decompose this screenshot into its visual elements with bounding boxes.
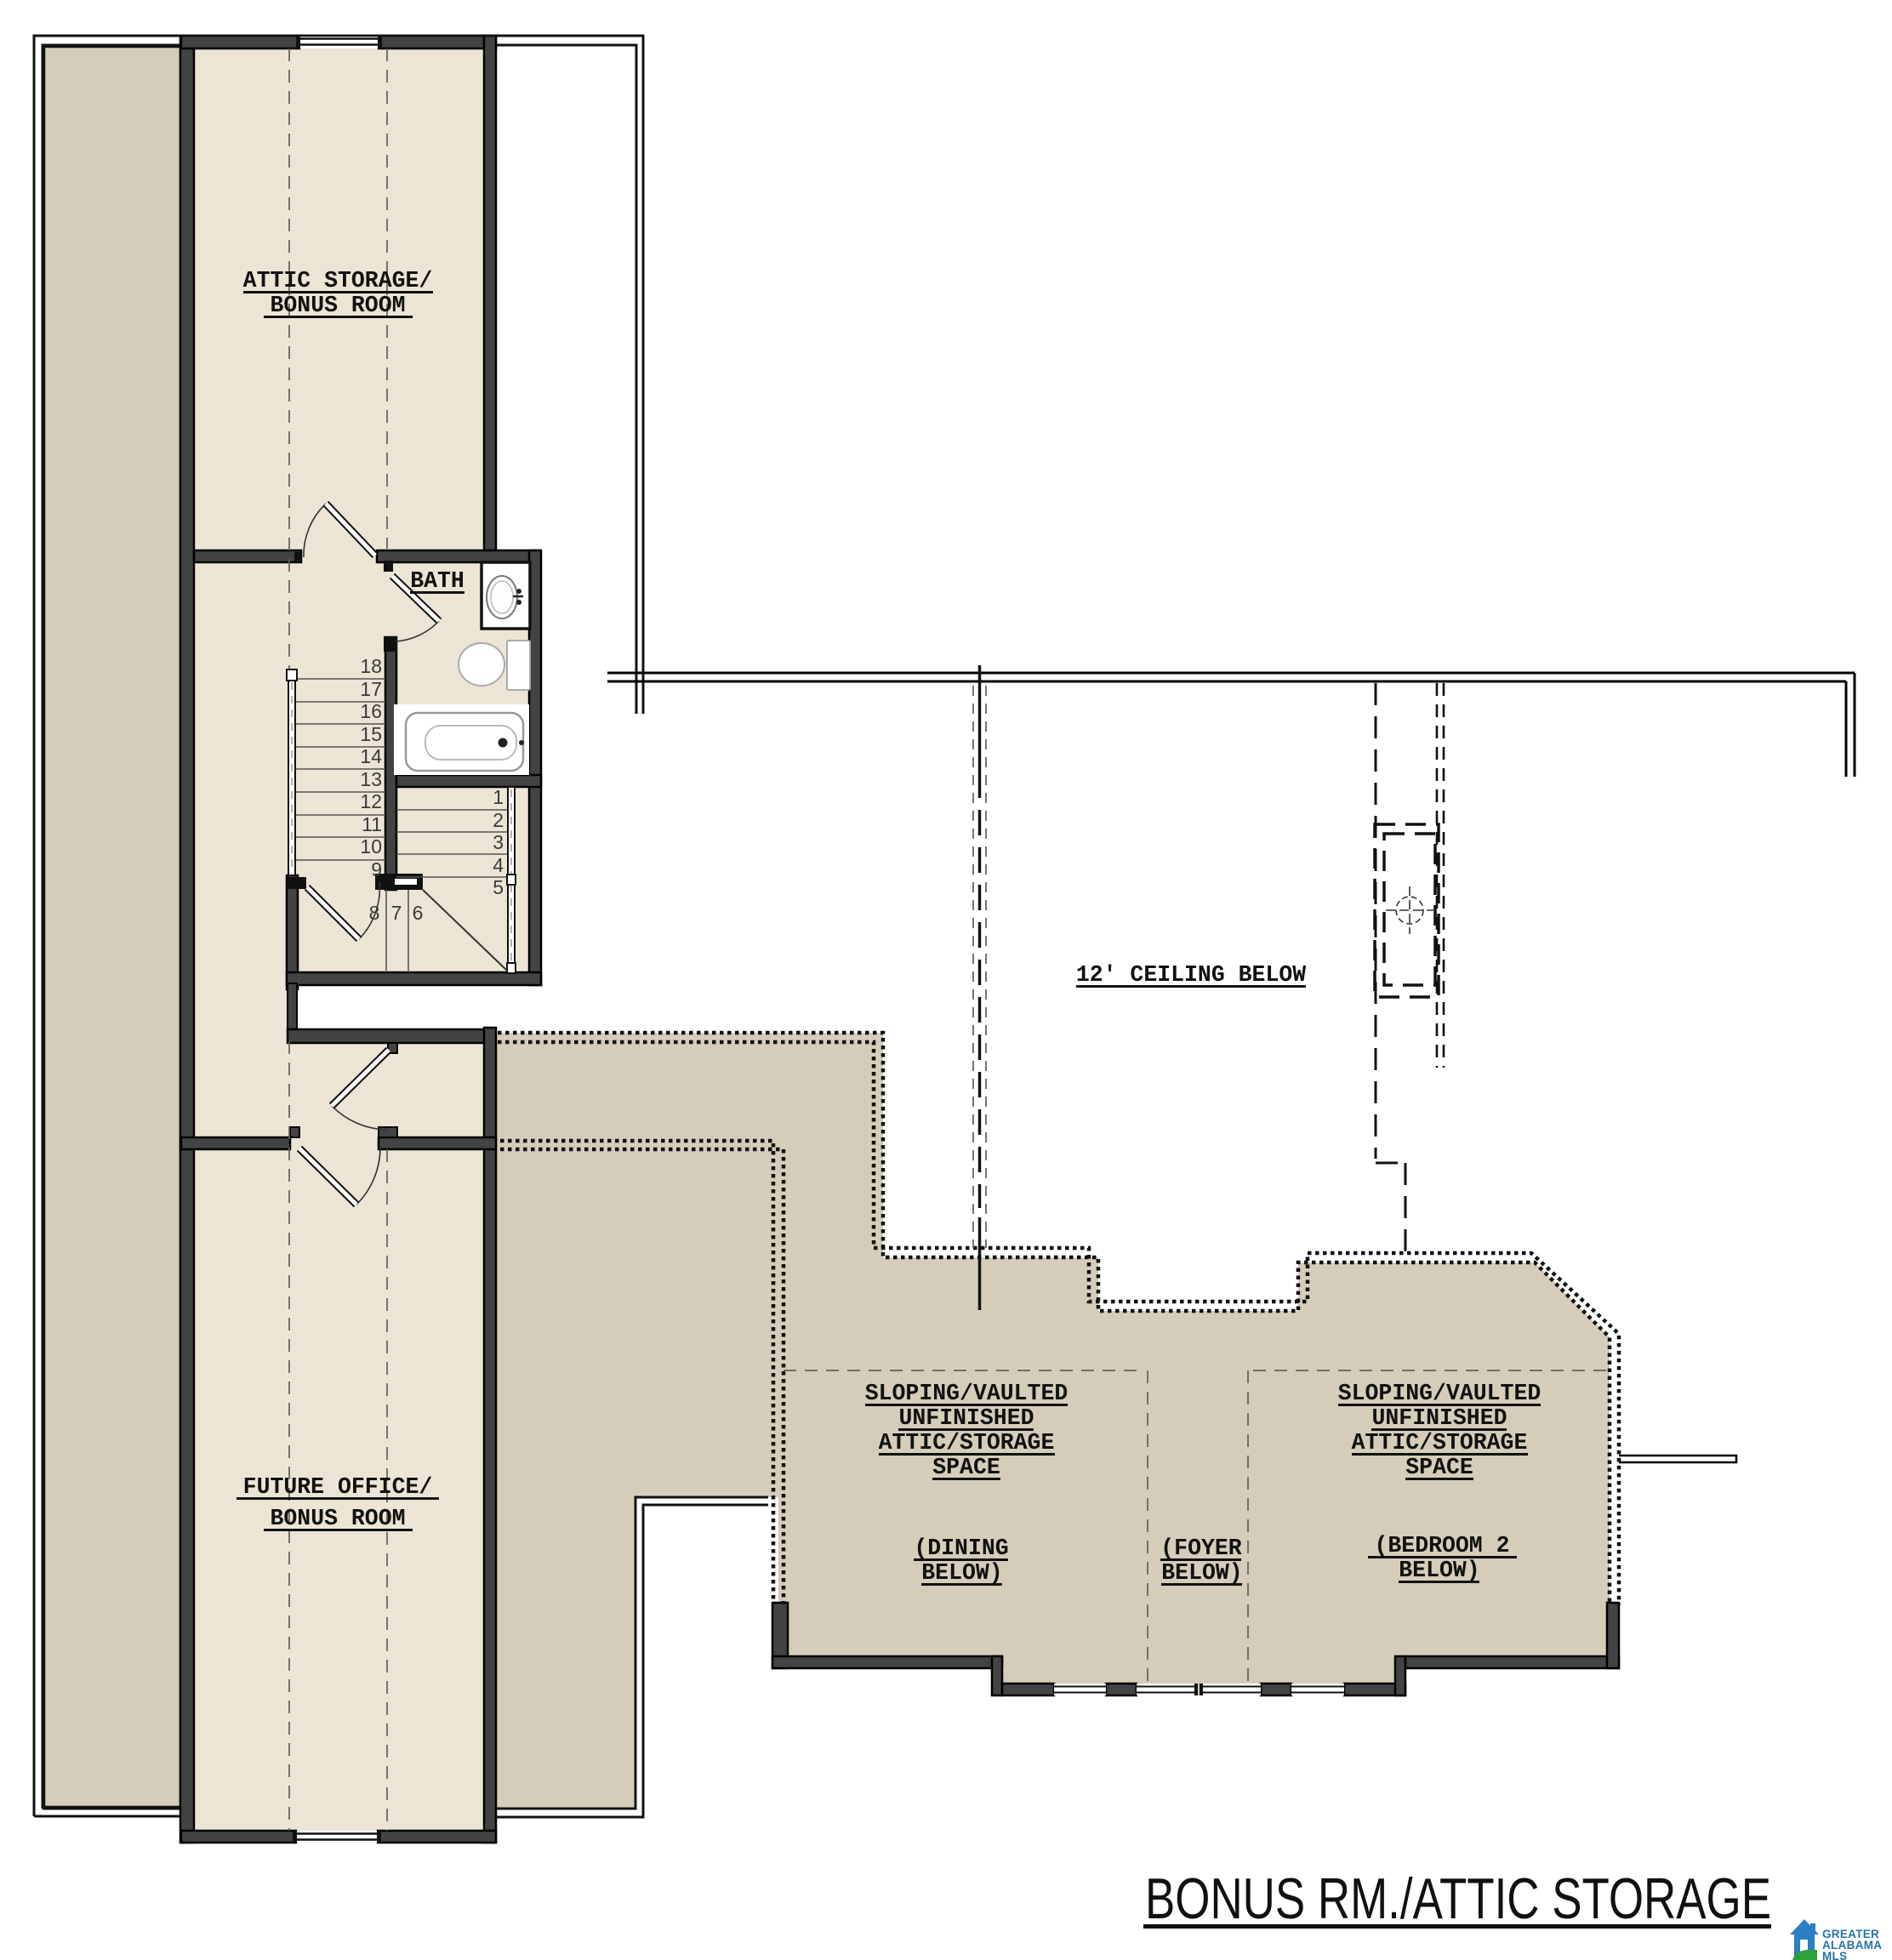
svg-text:SLOPING/VAULTED: SLOPING/VAULTED — [865, 1381, 1069, 1406]
svg-text:11: 11 — [362, 813, 382, 835]
svg-text:BONUS ROOM: BONUS ROOM — [270, 1506, 405, 1531]
svg-text:MLS: MLS — [1822, 1950, 1847, 1960]
svg-text:(FOYER: (FOYER — [1160, 1536, 1242, 1561]
svg-text:FUTURE OFFICE/: FUTURE OFFICE/ — [243, 1474, 433, 1500]
svg-text:UNFINISHED: UNFINISHED — [1371, 1405, 1507, 1431]
svg-text:BELOW): BELOW) — [921, 1560, 1002, 1586]
svg-text:ATTIC/STORAGE: ATTIC/STORAGE — [1352, 1430, 1528, 1456]
svg-text:5: 5 — [493, 876, 504, 898]
svg-text:14: 14 — [360, 745, 382, 767]
svg-text:SPACE: SPACE — [932, 1455, 1000, 1480]
svg-text:13: 13 — [360, 768, 382, 790]
svg-text:SPACE: SPACE — [1405, 1455, 1473, 1480]
svg-text:BATH: BATH — [410, 568, 464, 594]
svg-text:BONUS RM./ATTIC STORAGE: BONUS RM./ATTIC STORAGE — [1145, 1866, 1771, 1931]
svg-text:12: 12 — [360, 790, 382, 812]
svg-text:UNFINISHED: UNFINISHED — [898, 1405, 1034, 1431]
svg-text:9: 9 — [371, 858, 382, 880]
svg-text:16: 16 — [360, 700, 382, 722]
svg-text:1: 1 — [493, 786, 504, 808]
svg-text:18: 18 — [360, 655, 382, 677]
svg-text:2: 2 — [493, 809, 504, 831]
svg-text:(BEDROOM 2: (BEDROOM 2 — [1374, 1533, 1509, 1558]
svg-text:BELOW): BELOW) — [1161, 1560, 1242, 1586]
svg-text:BELOW): BELOW) — [1399, 1558, 1479, 1583]
svg-text:3: 3 — [493, 831, 504, 853]
svg-text:12' CEILING BELOW: 12' CEILING BELOW — [1076, 962, 1306, 988]
svg-text:SLOPING/VAULTED: SLOPING/VAULTED — [1338, 1381, 1542, 1406]
svg-text:ATTIC/STORAGE: ATTIC/STORAGE — [879, 1430, 1055, 1456]
svg-text:10: 10 — [360, 835, 382, 857]
svg-text:6: 6 — [413, 902, 424, 924]
svg-text:15: 15 — [360, 723, 382, 745]
svg-text:7: 7 — [391, 902, 402, 924]
svg-text:BONUS ROOM: BONUS ROOM — [270, 293, 405, 318]
svg-text:17: 17 — [360, 678, 382, 700]
svg-text:(DINING: (DINING — [914, 1536, 1008, 1561]
svg-text:4: 4 — [493, 854, 504, 876]
svg-text:ATTIC STORAGE/: ATTIC STORAGE/ — [243, 268, 433, 293]
